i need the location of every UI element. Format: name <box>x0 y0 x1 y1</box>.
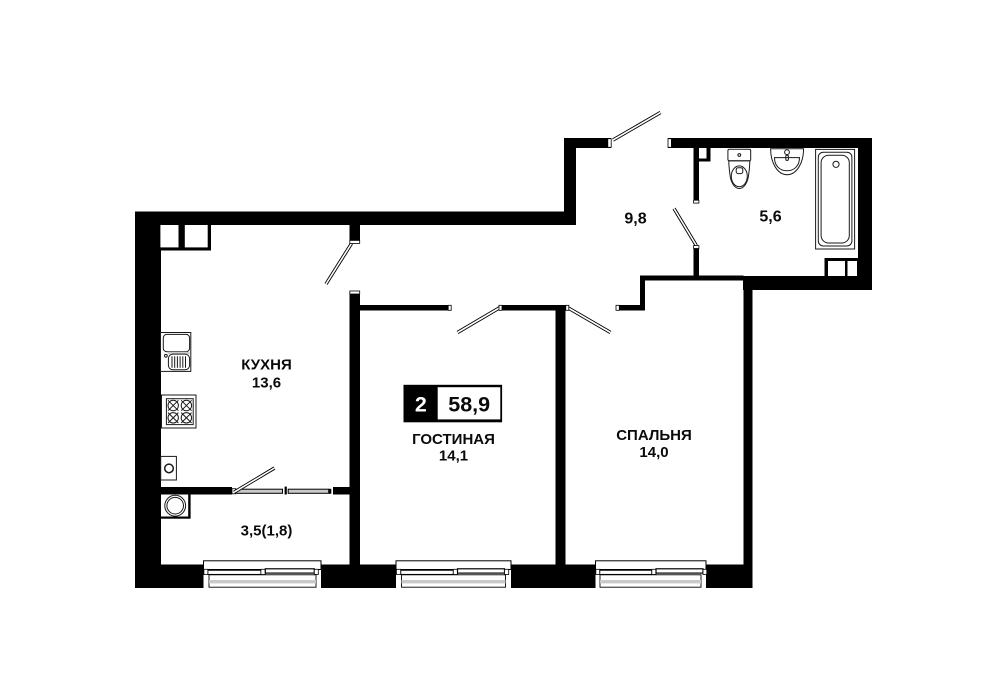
svg-text:13,6: 13,6 <box>252 375 281 392</box>
svg-text:ГОСТИНАЯ: ГОСТИНАЯ <box>412 431 495 448</box>
svg-text:3,5(1,8): 3,5(1,8) <box>241 523 293 540</box>
svg-text:14,1: 14,1 <box>439 448 468 465</box>
svg-text:14,0: 14,0 <box>639 444 668 461</box>
svg-text:5,6: 5,6 <box>759 208 781 225</box>
svg-text:9,8: 9,8 <box>624 211 646 228</box>
svg-text:58,9: 58,9 <box>448 393 490 417</box>
svg-text:2: 2 <box>415 393 427 417</box>
svg-text:КУХНЯ: КУХНЯ <box>241 357 291 374</box>
svg-text:СПАЛЬНЯ: СПАЛЬНЯ <box>616 427 692 444</box>
